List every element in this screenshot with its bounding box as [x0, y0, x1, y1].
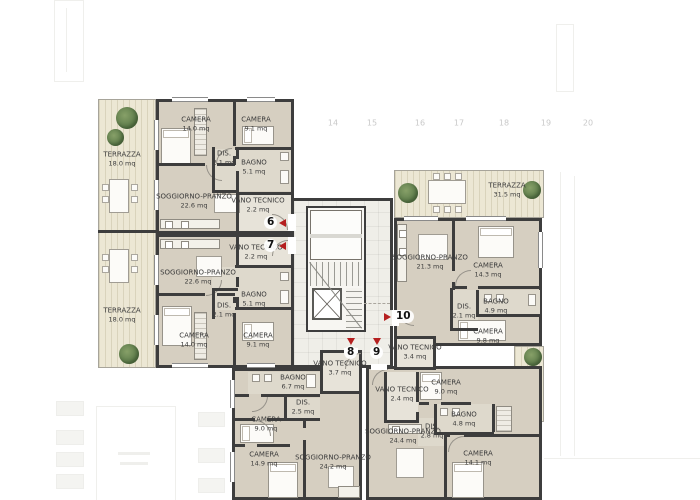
stove — [181, 241, 189, 249]
chair — [433, 173, 440, 180]
tree-icon — [116, 107, 138, 129]
kitchen-counter — [338, 486, 360, 498]
ghost-outline — [198, 412, 225, 427]
room-label: VANO TECNICO2.4 mq — [375, 386, 428, 403]
wall — [217, 293, 235, 296]
window — [230, 452, 235, 482]
room-label: SOGGIORNO-PRANZO22.6 mq — [156, 193, 232, 210]
tree-icon — [107, 129, 124, 146]
window — [247, 97, 275, 102]
wall — [236, 277, 239, 287]
entry-arrow-icon — [279, 219, 286, 227]
chair — [102, 266, 109, 273]
bed — [452, 462, 484, 498]
wall — [236, 149, 239, 159]
chair — [455, 173, 462, 180]
chair — [102, 184, 109, 191]
table — [109, 179, 129, 213]
wall — [235, 394, 249, 397]
grid-column-label: 16 — [415, 119, 425, 128]
wall — [233, 102, 236, 146]
ghost-outline — [56, 452, 84, 467]
tree-icon — [398, 183, 418, 203]
wall — [233, 313, 236, 365]
window — [154, 255, 159, 285]
grid-column-label: 18 — [499, 119, 509, 128]
apartment-10-marker[interactable]: 10 — [384, 310, 414, 323]
room-label: BAGNO6.7 mq — [280, 374, 306, 391]
wall — [236, 297, 239, 307]
wall — [455, 286, 467, 289]
room-label: SOGGIORNO-PRANZO21.3 mq — [392, 254, 468, 271]
apartment-8-marker[interactable]: 8 — [344, 338, 357, 359]
entry-arrow-icon — [279, 242, 286, 250]
door-opening — [371, 364, 387, 370]
window — [154, 120, 159, 150]
stair-treads — [346, 288, 362, 328]
chair — [131, 196, 138, 203]
room-label: TERRAZZA18.0 mq — [103, 151, 140, 168]
wall — [441, 402, 471, 405]
bed — [161, 128, 191, 166]
bathroom-fixture — [252, 374, 260, 382]
entry-arrow-icon — [347, 338, 355, 345]
chair — [131, 254, 138, 261]
room-label: VANO TECNICO3.4 mq — [388, 344, 441, 361]
room-label: CAMERA9.1 mq — [241, 116, 271, 133]
bathroom-fixture — [280, 272, 289, 281]
wall — [236, 171, 239, 192]
window — [404, 216, 438, 221]
ghost-outline — [198, 478, 225, 493]
room-label: DIS.2.1 mq — [213, 150, 236, 167]
window — [466, 216, 506, 221]
ghost-outline — [118, 452, 150, 455]
wall — [284, 396, 287, 418]
bathroom-fixture — [264, 374, 272, 382]
ghost-outline — [66, 8, 67, 72]
wall — [212, 288, 238, 291]
apartment-number[interactable]: 8 — [344, 346, 357, 359]
wall — [159, 293, 205, 296]
entry-arrow-icon — [373, 338, 381, 345]
chair — [444, 173, 451, 180]
ghost-outline — [544, 458, 700, 459]
ghost-outline — [574, 176, 575, 456]
window — [154, 315, 159, 345]
window — [247, 363, 275, 368]
ghost-outline — [56, 430, 84, 445]
grid-column-label: 17 — [454, 119, 464, 128]
wall — [261, 394, 320, 397]
wall — [235, 265, 291, 268]
wall — [478, 286, 540, 289]
room-label: CAMERA9.0 mq — [251, 416, 281, 433]
table — [428, 180, 466, 204]
apartment-7-marker[interactable]: 7 — [264, 239, 286, 252]
elevator — [312, 288, 342, 320]
door-opening — [288, 237, 296, 254]
chair — [131, 184, 138, 191]
wall — [444, 436, 447, 500]
bathroom-fixture — [280, 170, 289, 184]
sink — [165, 221, 173, 229]
wall — [236, 192, 291, 195]
bathroom-fixture — [440, 408, 448, 416]
room-label: SOGGIORNO-PRANZO24.2 mq — [295, 454, 371, 471]
ghost-outline — [560, 172, 561, 456]
wall — [159, 163, 205, 166]
apartment-number[interactable]: 10 — [393, 310, 414, 323]
wall — [464, 434, 542, 437]
bathroom-fixture — [280, 290, 289, 304]
wardrobe — [496, 406, 512, 432]
ghost-outline — [56, 401, 84, 416]
room-label: CAMERA14.1 mq — [463, 450, 493, 467]
door-opening — [288, 214, 296, 231]
wall — [98, 230, 156, 233]
room-label: BAGNO4.9 mq — [483, 298, 509, 315]
room-label: CAMERA14.0 mq — [179, 332, 209, 349]
tree-icon — [524, 348, 542, 366]
bathroom-fixture — [528, 294, 536, 306]
grid-column-label: 14 — [328, 119, 338, 128]
grid-column-label: 19 — [541, 119, 551, 128]
chair — [131, 266, 138, 273]
tree-icon — [119, 344, 139, 364]
table — [109, 249, 129, 283]
ghost-outline — [556, 24, 574, 92]
bathroom-fixture — [280, 152, 289, 161]
wall — [492, 404, 495, 432]
ghost-outline — [56, 474, 84, 489]
table — [396, 448, 424, 478]
room-label: BAGNO5.1 mq — [241, 291, 267, 308]
wall — [476, 290, 479, 316]
room-label: VANO TECNICO2.2 mq — [231, 197, 284, 214]
chair — [433, 206, 440, 213]
ghost-outline — [198, 448, 225, 463]
grid-column-label: 15 — [367, 119, 377, 128]
window — [230, 380, 235, 408]
apartment-number[interactable]: 6 — [264, 216, 277, 229]
apartment-number[interactable]: 7 — [264, 239, 277, 252]
ghost-outline — [120, 462, 148, 465]
chair — [102, 196, 109, 203]
entry-arrow-icon — [384, 313, 391, 321]
wall — [257, 444, 290, 447]
room-label: DIS.2.1 mq — [453, 303, 476, 320]
wall — [293, 198, 393, 201]
room-label: SOGGIORNO-PRANZO24.4 mq — [365, 428, 441, 445]
room-label: CAMERA14.9 mq — [249, 451, 279, 468]
window — [172, 97, 208, 102]
room-label: TERRAZZA18.0 mq — [103, 307, 140, 324]
sink — [399, 230, 407, 238]
ghost-outline — [54, 0, 84, 82]
chair — [444, 206, 451, 213]
window — [172, 363, 208, 368]
apartment-9-marker[interactable]: 9 — [370, 338, 383, 359]
room-label: CAMERA9.0 mq — [431, 379, 461, 396]
room-label: CAMERA9.8 mq — [473, 328, 503, 345]
path-dash — [364, 303, 390, 304]
tree-icon — [523, 181, 541, 199]
apartment-6-marker[interactable]: 6 — [264, 216, 286, 229]
wall — [235, 147, 291, 150]
room-label: CAMERA9.1 mq — [243, 332, 273, 349]
floor-plan-canvas: 14 15 16 17 18 19 20 — [0, 0, 700, 500]
room-label: CAMERA14.0 mq — [181, 116, 211, 133]
room-label: TERRAZZA31.5 mq — [488, 182, 525, 199]
stair-landing — [310, 234, 362, 238]
room-label: DIS.2.1 mq — [213, 302, 236, 319]
room-label: SOGGIORNO-PRANZO22.6 mq — [160, 269, 236, 286]
window — [538, 232, 543, 268]
room-label: BAGNO4.8 mq — [451, 411, 477, 428]
wall — [235, 444, 245, 447]
room-label: BAGNO5.1 mq — [241, 159, 267, 176]
sink — [165, 241, 173, 249]
wall — [384, 420, 419, 423]
bed — [478, 226, 514, 258]
wall — [416, 412, 419, 420]
chair — [455, 206, 462, 213]
stove — [181, 221, 189, 229]
room-label: DIS.2.5 mq — [292, 399, 315, 416]
room-label: CAMERA14.3 mq — [473, 262, 503, 279]
wall — [303, 418, 306, 428]
chair — [102, 254, 109, 261]
apartment-number[interactable]: 9 — [370, 346, 383, 359]
room-label: VANO TECNICO3.7 mq — [313, 360, 366, 377]
grid-column-label: 20 — [583, 119, 593, 128]
